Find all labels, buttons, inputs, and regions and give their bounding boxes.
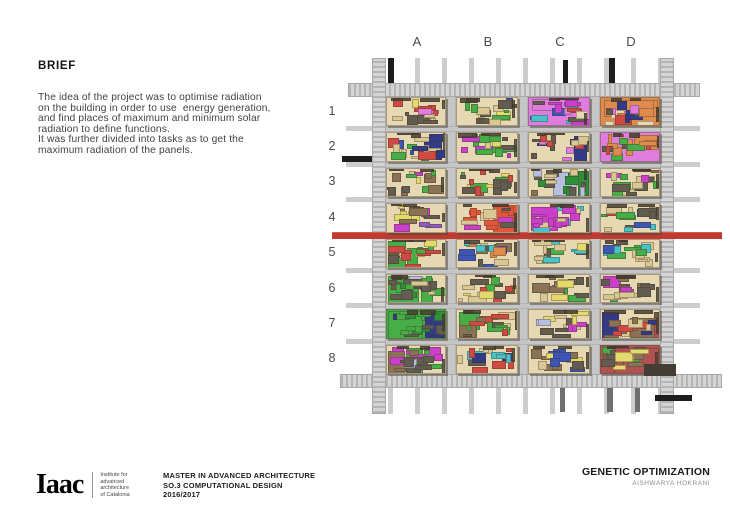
grid-cell-B2	[456, 132, 518, 161]
building-block	[512, 348, 515, 362]
building-block	[397, 346, 409, 349]
grid-cell-B1	[456, 97, 518, 126]
building-block	[442, 243, 445, 256]
building-block	[469, 321, 485, 326]
building-block	[557, 218, 566, 222]
road-stub-right	[674, 162, 700, 167]
building-block	[566, 147, 574, 153]
building-block	[458, 298, 463, 302]
building-block	[476, 317, 486, 322]
building-block	[409, 208, 428, 216]
column-label-c: C	[549, 34, 571, 49]
road-stub-top	[523, 58, 528, 83]
building-block	[463, 204, 472, 207]
grid-cell-A6	[386, 274, 446, 303]
building-shadow	[644, 364, 676, 376]
building-block	[494, 259, 509, 266]
building-block	[580, 187, 585, 197]
building-block	[515, 311, 518, 330]
building-block	[545, 133, 565, 135]
building-block	[532, 240, 542, 243]
building-block	[464, 240, 480, 244]
building-block	[481, 133, 501, 135]
building-block	[626, 192, 637, 196]
building-block	[404, 357, 414, 367]
building-block	[550, 358, 560, 367]
building-block	[557, 98, 578, 100]
building-block	[441, 177, 444, 192]
building-block	[601, 359, 615, 367]
building-block	[532, 139, 542, 142]
building-block	[475, 275, 495, 278]
brief-line: The idea of the project was to optimise …	[38, 93, 271, 104]
building-block	[415, 326, 421, 334]
logo-sub-line: architecture	[100, 485, 129, 492]
building-block	[533, 101, 545, 105]
road-stub-right	[674, 303, 700, 308]
building-block	[514, 182, 517, 193]
building-block	[606, 146, 611, 156]
building-block	[604, 227, 613, 232]
building-block	[409, 350, 418, 356]
road-stub-top	[496, 58, 501, 83]
brief-heading: BRIEF	[38, 60, 76, 72]
grid-cell-B7	[456, 309, 518, 338]
building-block	[489, 119, 500, 126]
building-block	[616, 212, 635, 219]
building-block	[495, 148, 502, 157]
building-block	[475, 186, 482, 196]
building-block	[619, 240, 627, 243]
building-block	[464, 225, 481, 231]
program-line: MASTER IN ADVANCED ARCHITECTURE	[163, 471, 315, 481]
road-stub-left	[346, 126, 372, 131]
program-info: MASTER IN ADVANCED ARCHITECTURE SO.3 COM…	[163, 471, 315, 500]
building-block	[565, 176, 579, 185]
road-stub-bottom	[550, 388, 555, 414]
building-block	[533, 223, 541, 228]
road-stub-top	[442, 58, 447, 83]
building-block	[463, 293, 471, 296]
building-block	[586, 324, 589, 338]
grid-cell-A2	[386, 132, 446, 161]
building-block	[512, 100, 515, 119]
iaac-logo-subtext: Institute for advanced architecture of C…	[100, 472, 129, 498]
building-block	[554, 315, 567, 319]
building-block	[604, 310, 626, 313]
grid-cell-D1	[600, 97, 660, 126]
building-block	[406, 174, 416, 178]
building-block	[484, 240, 504, 243]
dark-stub-bottom	[607, 388, 613, 412]
grid-cell-C8	[528, 345, 590, 374]
dark-stub-bottom	[560, 388, 565, 412]
building-block	[531, 169, 540, 172]
building-block	[420, 169, 434, 173]
building-block	[605, 121, 614, 126]
logo-sub-line: of Catalonia	[100, 492, 129, 499]
building-block	[463, 334, 472, 337]
dark-bar-top	[388, 58, 394, 83]
row-label-5: 5	[324, 245, 340, 259]
building-block	[464, 310, 472, 314]
building-block	[392, 240, 413, 243]
building-block	[611, 172, 617, 181]
grid-cell-A5	[386, 239, 446, 268]
building-block	[616, 275, 636, 279]
building-block	[576, 277, 583, 285]
building-block	[553, 169, 562, 173]
building-block	[565, 100, 579, 108]
building-block	[656, 207, 659, 220]
building-block	[479, 119, 484, 122]
inner-road-horizontal	[386, 197, 660, 203]
building-block	[469, 179, 474, 185]
brief-line: maximum radiation of the panels.	[38, 146, 271, 157]
road-stub-top	[631, 58, 636, 83]
building-block	[476, 149, 493, 155]
building-block	[632, 317, 639, 324]
building-block	[420, 98, 441, 102]
building-block	[531, 190, 538, 196]
building-block	[532, 214, 548, 218]
road-stub-bottom	[577, 388, 582, 414]
building-block	[572, 316, 577, 325]
building-block	[416, 177, 421, 184]
road-stub-right	[674, 197, 700, 202]
building-block	[568, 324, 572, 333]
building-block	[405, 264, 421, 268]
grid-cell-A7	[386, 309, 446, 338]
row-label-8: 8	[324, 351, 340, 365]
grid-cell-A1	[386, 97, 446, 126]
building-block	[586, 352, 589, 369]
building-block	[607, 204, 627, 208]
building-block	[641, 331, 653, 335]
building-block	[584, 113, 587, 127]
building-block	[470, 208, 478, 217]
building-block	[418, 151, 435, 159]
building-block	[586, 277, 589, 287]
building-block	[637, 121, 654, 126]
building-block	[655, 253, 658, 261]
building-block	[606, 109, 613, 115]
grid-cell-D4	[600, 203, 660, 232]
building-block	[544, 174, 557, 178]
building-block	[620, 174, 628, 180]
building-block	[620, 287, 632, 292]
building-block	[502, 329, 508, 336]
building-block	[388, 255, 399, 264]
building-block	[632, 182, 643, 189]
building-block	[392, 275, 402, 280]
building-block	[494, 346, 503, 350]
building-block	[403, 204, 417, 207]
building-block	[483, 209, 497, 218]
building-block	[443, 133, 446, 150]
building-block	[469, 169, 491, 171]
building-block	[551, 294, 568, 302]
building-block	[548, 102, 562, 105]
building-block	[587, 141, 590, 152]
building-block	[479, 291, 494, 299]
building-block	[576, 293, 589, 298]
logo-divider	[92, 472, 93, 498]
road-stub-left	[346, 268, 372, 273]
building-block	[391, 204, 402, 206]
building-block	[461, 147, 468, 153]
building-block	[485, 246, 490, 251]
building-block	[543, 257, 560, 263]
road-stub-bottom	[496, 388, 501, 414]
building-block	[646, 324, 651, 330]
building-block	[472, 367, 488, 374]
building-block	[554, 244, 566, 251]
building-block	[540, 293, 548, 302]
building-block	[656, 107, 659, 122]
road-stub-right	[674, 339, 700, 344]
building-block	[412, 146, 428, 151]
building-block	[462, 285, 475, 290]
dark-bar-bottom-right	[655, 395, 692, 401]
building-block	[533, 346, 545, 349]
building-block	[514, 213, 517, 232]
road-stub-top	[415, 58, 420, 83]
building-block	[550, 204, 564, 207]
building-block	[399, 219, 417, 224]
main-road-top	[348, 83, 700, 97]
building-block	[469, 348, 475, 358]
building-block	[493, 247, 506, 255]
building-block	[411, 281, 428, 285]
dark-stub-bottom	[635, 388, 640, 412]
building-block	[460, 98, 478, 103]
building-block	[531, 349, 542, 359]
grid-cell-D5	[600, 239, 660, 268]
grid-cell-A4	[386, 203, 446, 232]
building-block	[630, 349, 649, 354]
building-block	[388, 187, 396, 197]
building-block	[601, 279, 610, 286]
dark-bar-left	[342, 156, 372, 162]
building-block	[491, 277, 500, 285]
grid-cell-C4	[528, 203, 590, 232]
building-block	[555, 328, 568, 332]
grid-canvas	[322, 28, 728, 438]
row-label-1: 1	[324, 104, 340, 118]
road-stub-bottom	[469, 388, 474, 414]
building-block	[462, 187, 475, 194]
grid-cell-C6	[528, 274, 590, 303]
dark-bar-top	[609, 58, 615, 83]
building-block	[418, 106, 432, 109]
inner-road-horizontal	[386, 126, 660, 132]
building-block	[470, 279, 488, 285]
grid-cell-B3	[456, 168, 518, 197]
author-name: AISHWARYA HOKRANI	[582, 480, 710, 487]
building-block	[605, 240, 614, 244]
row-label-4: 4	[324, 210, 340, 224]
grid-cell-D3	[600, 168, 660, 197]
building-block	[555, 104, 562, 113]
grid-cell-C5	[528, 239, 590, 268]
building-block	[392, 116, 402, 121]
building-block	[624, 227, 632, 232]
building-block	[628, 362, 644, 367]
grid-cell-C7	[528, 309, 590, 338]
building-block	[397, 133, 419, 135]
road-stub-top	[577, 58, 582, 83]
building-block	[649, 211, 656, 219]
building-block	[388, 246, 405, 254]
iaac-logo-wordmark: Iaac	[36, 473, 83, 497]
program-line: SO.3 COMPUTATIONAL DESIGN	[163, 481, 315, 491]
building-block	[612, 191, 623, 196]
building-block	[400, 330, 409, 334]
building-block	[458, 133, 478, 137]
brief-paragraph: The idea of the project was to optimise …	[38, 93, 271, 156]
grid-cell-D7	[600, 309, 660, 338]
slide: BRIEF The idea of the project was to opt…	[0, 0, 730, 521]
building-block	[407, 115, 418, 125]
building-block	[656, 174, 659, 188]
building-block	[531, 153, 537, 160]
building-block	[442, 100, 445, 109]
building-block	[422, 325, 435, 329]
building-block	[402, 186, 411, 193]
building-block	[389, 169, 404, 171]
building-block	[429, 134, 443, 142]
project-title: GENETIC OPTIMIZATION	[582, 466, 710, 478]
building-block	[632, 169, 650, 171]
building-block	[607, 346, 617, 349]
road-stub-top	[469, 58, 474, 83]
building-block	[634, 222, 652, 228]
building-block	[420, 346, 430, 350]
building-block	[531, 115, 549, 122]
building-block	[436, 150, 445, 158]
building-block	[415, 365, 432, 369]
building-block	[547, 141, 553, 147]
building-block	[442, 359, 445, 375]
optimization-grid-diagram: A B C D 1 2 3 4 5 6 7 8	[322, 28, 728, 438]
building-block	[572, 361, 584, 371]
building-block	[514, 139, 517, 157]
building-block	[404, 250, 412, 254]
building-block	[538, 319, 551, 327]
logo-sub-line: Institute for	[100, 472, 129, 479]
building-block	[478, 259, 483, 268]
building-block	[442, 314, 445, 330]
column-label-b: B	[477, 34, 499, 49]
grid-cell-C1	[528, 97, 590, 126]
building-block	[401, 290, 413, 299]
inner-road-horizontal	[386, 303, 660, 309]
building-block	[459, 249, 476, 256]
building-block	[639, 108, 655, 117]
building-block	[492, 361, 506, 368]
grid-cell-B4	[456, 203, 518, 232]
building-block	[484, 220, 500, 226]
building-block	[538, 361, 547, 369]
building-block	[612, 184, 630, 193]
building-block	[471, 104, 478, 113]
road-stub-left	[346, 197, 372, 202]
building-block	[637, 287, 650, 297]
building-block	[394, 368, 406, 372]
building-block	[651, 170, 660, 173]
road-stub-left	[346, 303, 372, 308]
building-block	[457, 355, 463, 364]
brief-line: and find places of maximum and minimum s…	[38, 114, 271, 125]
iaac-logo: Iaac Institute for advanced architecture…	[36, 472, 130, 498]
building-block	[656, 287, 659, 303]
building-block	[504, 110, 509, 113]
building-block	[507, 153, 511, 158]
building-block	[614, 246, 622, 254]
building-block	[401, 253, 410, 261]
building-block	[552, 334, 571, 337]
building-block	[506, 354, 512, 362]
building-block	[430, 334, 439, 338]
row-label-3: 3	[324, 174, 340, 188]
building-block	[410, 150, 414, 155]
building-block	[613, 331, 621, 337]
building-block	[656, 318, 659, 334]
building-block	[614, 292, 621, 299]
grid-cell-B8	[456, 345, 518, 374]
road-stub-right	[674, 268, 700, 273]
row-label-7: 7	[324, 316, 340, 330]
building-block	[498, 100, 511, 109]
building-block	[638, 204, 655, 206]
building-block	[442, 213, 445, 222]
road-stub-right	[674, 126, 700, 131]
building-block	[570, 169, 579, 176]
building-block	[491, 314, 510, 319]
building-block	[553, 310, 567, 314]
building-block	[508, 175, 513, 182]
building-block	[496, 354, 507, 359]
grid-cell-A8	[386, 345, 446, 374]
road-stub-bottom	[442, 388, 447, 414]
building-block	[611, 98, 622, 102]
building-block	[425, 250, 442, 255]
building-block	[492, 204, 509, 207]
building-block	[394, 224, 410, 232]
road-stub-left	[346, 339, 372, 344]
building-block	[557, 280, 575, 289]
building-block	[657, 136, 660, 148]
building-block	[393, 314, 397, 320]
building-block	[419, 222, 430, 227]
program-line: 2016/2017	[163, 490, 315, 500]
project-credit: GENETIC OPTIMIZATION AISHWARYA HOKRANI	[582, 466, 710, 487]
column-label-a: A	[406, 34, 428, 49]
road-stub-bottom	[523, 388, 528, 414]
building-block	[636, 249, 647, 256]
building-block	[584, 169, 587, 180]
building-block	[630, 98, 641, 101]
building-block	[562, 157, 572, 161]
building-block	[639, 141, 657, 146]
brief-line: It was further divided into tasks as to …	[38, 135, 271, 146]
grid-cell-D6	[600, 274, 660, 303]
building-block	[538, 180, 546, 187]
row-label-2: 2	[324, 139, 340, 153]
column-label-d: D	[620, 34, 642, 49]
building-block	[494, 291, 506, 299]
